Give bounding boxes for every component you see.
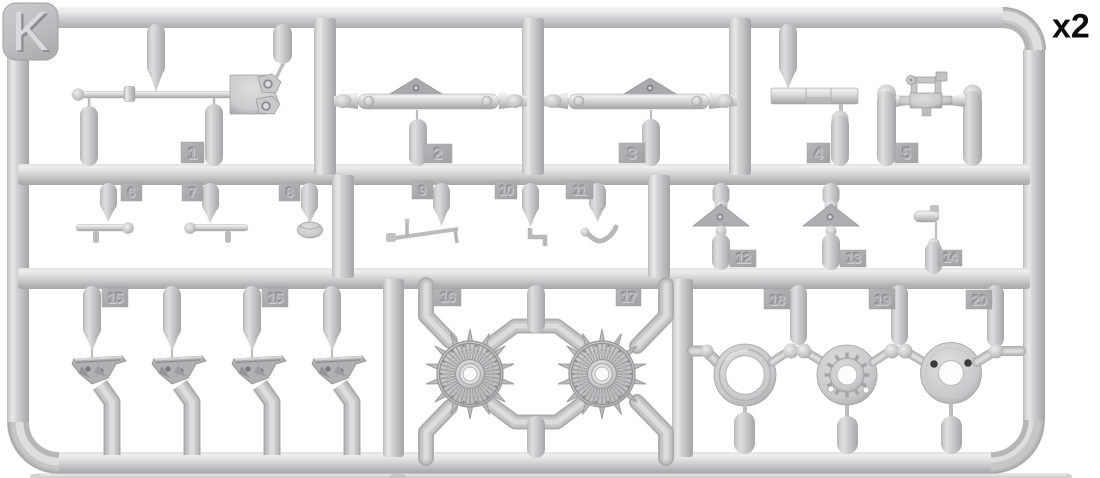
svg-text:16: 16 [440, 289, 455, 306]
svg-text:15: 15 [108, 290, 123, 307]
svg-text:2: 2 [433, 144, 442, 163]
svg-text:8: 8 [286, 184, 294, 200]
svg-text:20: 20 [972, 292, 987, 309]
svg-text:5: 5 [902, 144, 911, 163]
svg-text:12: 12 [736, 250, 751, 267]
svg-text:K: K [11, 0, 48, 62]
svg-text:19: 19 [875, 292, 890, 309]
svg-text:18: 18 [770, 292, 785, 309]
svg-text:6: 6 [128, 184, 136, 200]
svg-text:13: 13 [846, 250, 861, 267]
svg-text:14: 14 [943, 249, 958, 265]
svg-text:7: 7 [189, 184, 197, 200]
svg-text:9: 9 [419, 182, 427, 198]
svg-text:4: 4 [814, 144, 824, 163]
svg-text:10: 10 [499, 182, 514, 198]
svg-text:15: 15 [268, 290, 283, 307]
svg-text:3: 3 [627, 144, 636, 163]
svg-text:x2: x2 [1052, 8, 1090, 46]
svg-text:1: 1 [188, 144, 197, 163]
svg-text:17: 17 [621, 289, 636, 306]
svg-text:11: 11 [573, 182, 587, 198]
